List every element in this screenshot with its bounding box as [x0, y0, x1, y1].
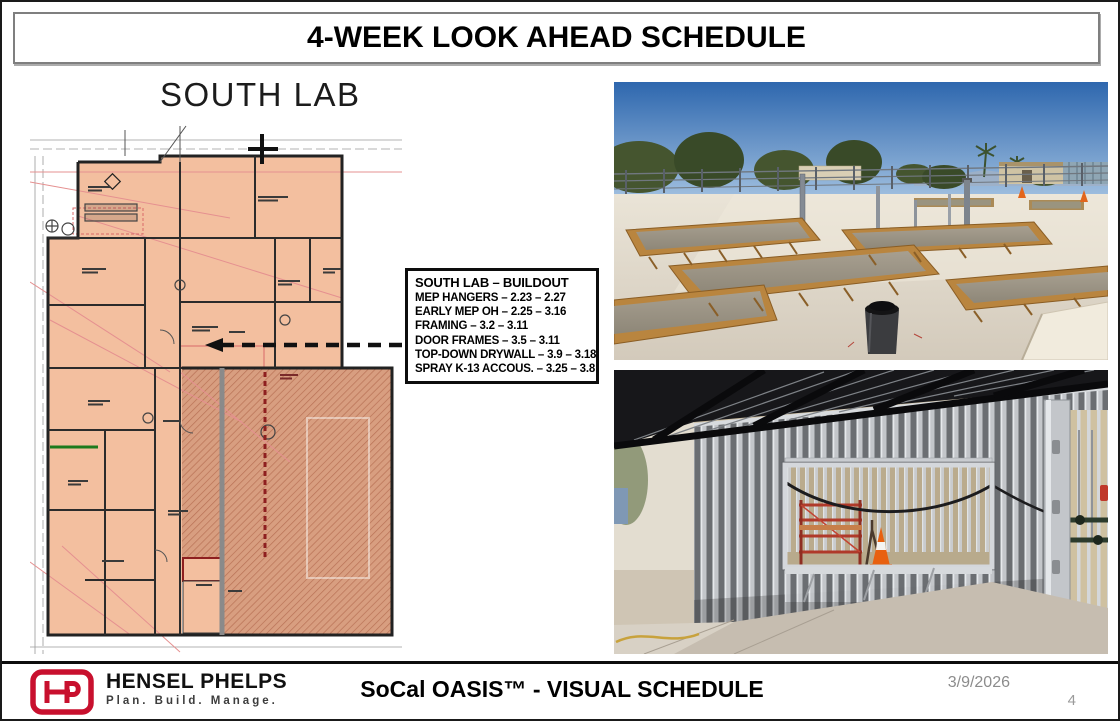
trash-can [865, 301, 899, 354]
footer: HENSEL PHELPS Plan. Build. Manage. SoCal… [2, 664, 1120, 719]
callout-item: SPRAY K-13 ACCOUS. – 3.25 – 3.8 [415, 362, 590, 376]
arrowhead-icon [205, 338, 223, 352]
photo-bottom-graphic [614, 370, 1108, 654]
schedule-callout: SOUTH LAB – BUILDOUT MEP HANGERS – 2.23 … [405, 268, 599, 384]
leader-arrow [205, 336, 407, 354]
callout-item: EARLY MEP OH – 2.25 – 3.16 [415, 305, 590, 319]
title-box: 4-WEEK LOOK AHEAD SCHEDULE [13, 12, 1100, 64]
callout-title: SOUTH LAB – BUILDOUT [415, 275, 590, 291]
callout-item: DOOR FRAMES – 3.5 – 3.11 [415, 334, 590, 348]
construction-photo-top [614, 82, 1108, 360]
construction-photo-bottom [614, 370, 1108, 654]
callout-item: MEP HANGERS – 2.23 – 2.27 [415, 291, 590, 305]
floor-plan-drawing [30, 120, 402, 654]
floor-plan-label: SOUTH LAB [160, 76, 361, 114]
right-wall-section [1070, 410, 1108, 630]
page-title: 4-WEEK LOOK AHEAD SCHEDULE [307, 21, 806, 55]
fire-extinguisher [1100, 485, 1108, 501]
callout-item: FRAMING – 3.2 – 3.11 [415, 319, 590, 333]
page-number: 4 [1068, 692, 1076, 709]
slide-date: 3/9/2026 [948, 674, 1010, 692]
floor-plan [30, 120, 402, 654]
slide: 4-WEEK LOOK AHEAD SCHEDULE SOUTH LAB [0, 0, 1120, 721]
photo-top-graphic [614, 82, 1108, 360]
callout-item: TOP-DOWN DRYWALL – 3.9 – 3.18 [415, 348, 590, 362]
